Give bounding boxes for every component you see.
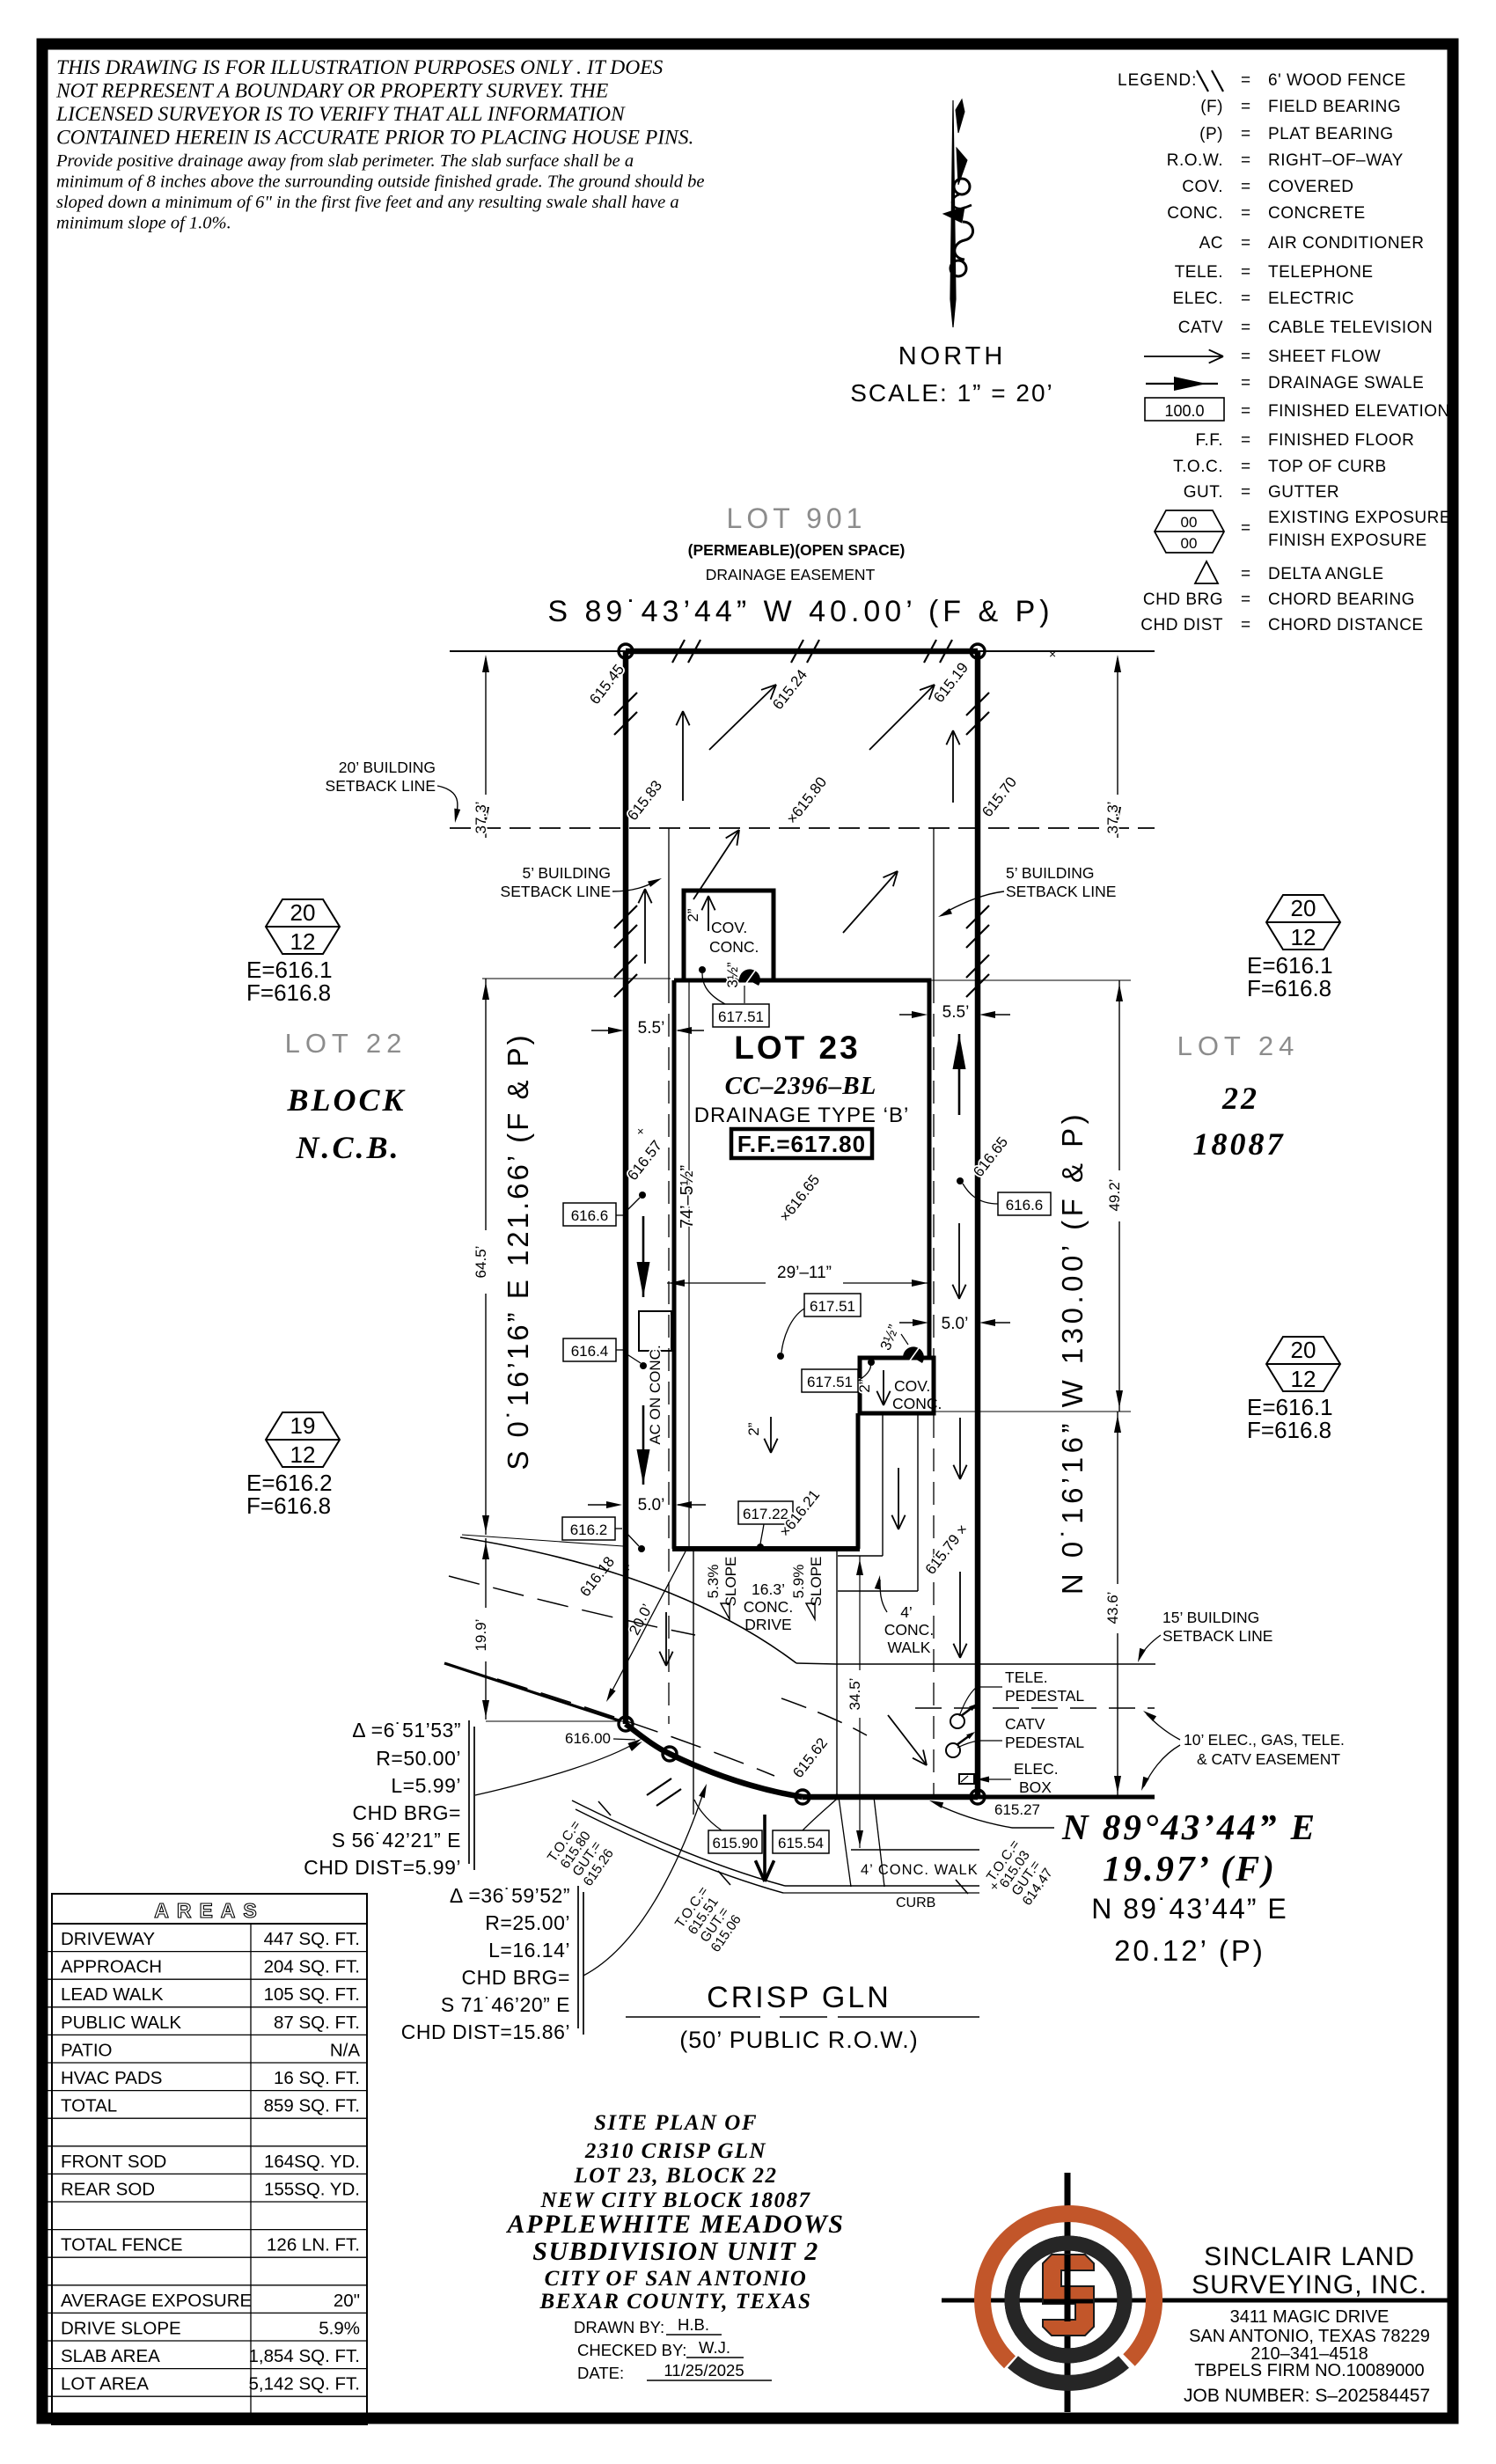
svg-text:BEXAR COUNTY, TEXAS: BEXAR COUNTY, TEXAS [539, 2290, 812, 2314]
svg-text:CONC.: CONC. [892, 1395, 942, 1412]
svg-text:PLAT BEARING: PLAT BEARING [1268, 125, 1394, 143]
svg-text:DRIVE: DRIVE [744, 1616, 791, 1633]
svg-text:5,142 SQ. FT.: 5,142 SQ. FT. [249, 2374, 360, 2394]
svg-text:=: = [1241, 263, 1250, 282]
svg-text:COVERED: COVERED [1268, 178, 1353, 196]
svg-text:CONC.: CONC. [744, 1598, 793, 1616]
svg-text:COV.: COV. [711, 919, 747, 936]
svg-text:JOB NUMBER: S–202584457: JOB NUMBER: S–202584457 [1184, 2386, 1430, 2406]
svg-text:20: 20 [1291, 1337, 1316, 1363]
svg-text:S 56˙42’21” E: S 56˙42’21” E [332, 1829, 461, 1852]
svg-text:PEDESTAL: PEDESTAL [1005, 1687, 1084, 1705]
svg-text:617.51: 617.51 [718, 1008, 764, 1025]
svg-text:& CATV EASEMENT: & CATV EASEMENT [1197, 1750, 1340, 1768]
svg-text:LEGEND:: LEGEND: [1118, 71, 1197, 90]
svg-text:AIR CONDITIONER: AIR CONDITIONER [1268, 234, 1424, 253]
svg-text:20": 20" [334, 2291, 360, 2311]
svg-text:(50’ PUBLIC R.O.W.): (50’ PUBLIC R.O.W.) [679, 2027, 919, 2053]
svg-text:=: = [1241, 590, 1250, 609]
svg-text:AC ON CONC.: AC ON CONC. [647, 1345, 664, 1444]
svg-text:NEW CITY BLOCK 18087: NEW CITY BLOCK 18087 [539, 2189, 810, 2212]
svg-text:=: = [1241, 98, 1250, 116]
svg-text:TELE.: TELE. [1005, 1668, 1048, 1686]
svg-text:PUBLIC WALK: PUBLIC WALK [61, 2013, 181, 2033]
svg-text:R=25.00’: R=25.00’ [485, 1911, 570, 1934]
svg-text:N 89°43’44” E: N 89°43’44” E [1061, 1807, 1317, 1847]
svg-text:155SQ. YD.: 155SQ. YD. [264, 2179, 360, 2199]
svg-text:TELE.: TELE. [1175, 263, 1223, 282]
svg-text:ELEC.: ELEC. [1014, 1760, 1059, 1778]
svg-text:SLOPE: SLOPE [808, 1557, 825, 1607]
svg-text:00: 00 [1181, 514, 1198, 531]
svg-text:sloped down a minimum of 6" in: sloped down a minimum of 6" in the first… [56, 193, 679, 212]
svg-text:19: 19 [290, 1412, 316, 1439]
svg-text:=: = [1241, 565, 1250, 583]
svg-text:CHD DIST=15.86’: CHD DIST=15.86’ [401, 2020, 570, 2043]
svg-text:EXISTING EXPOSURE: EXISTING EXPOSURE [1268, 509, 1451, 527]
svg-text:SCALE: 1” = 20’: SCALE: 1” = 20’ [850, 379, 1054, 407]
svg-text:22: 22 [1221, 1081, 1259, 1116]
svg-text:FINISHED FLOOR: FINISHED FLOOR [1268, 431, 1414, 450]
svg-text:CATV: CATV [1178, 319, 1223, 337]
svg-text:DELTA ANGLE: DELTA ANGLE [1268, 565, 1384, 583]
svg-text:FINISH EXPOSURE: FINISH EXPOSURE [1268, 532, 1427, 550]
svg-text:18087: 18087 [1193, 1126, 1286, 1162]
svg-text:SLAB AREA: SLAB AREA [61, 2346, 160, 2366]
svg-text:CONC.: CONC. [884, 1621, 934, 1639]
svg-text:100.0: 100.0 [1164, 402, 1204, 420]
svg-text:×: × [637, 1125, 644, 1138]
svg-text:F=616.8: F=616.8 [246, 979, 331, 1006]
svg-text:BLOCK: BLOCK [286, 1082, 406, 1118]
svg-text:CHD DIST: CHD DIST [1140, 616, 1223, 634]
svg-text:2”: 2” [856, 1379, 873, 1392]
svg-text:Δ =36˙59’52”: Δ =36˙59’52” [450, 1884, 570, 1907]
svg-text:SETBACK LINE: SETBACK LINE [1162, 1627, 1272, 1645]
svg-text:=: = [1241, 348, 1250, 366]
svg-text:GUTTER: GUTTER [1268, 483, 1339, 502]
svg-text:87 SQ. FT.: 87 SQ. FT. [274, 2013, 360, 2033]
svg-text:N 89˙43’44” E: N 89˙43’44” E [1091, 1893, 1287, 1925]
svg-text:SETBACK LINE: SETBACK LINE [326, 777, 436, 795]
svg-text:Δ =6˙51’53”: Δ =6˙51’53” [352, 1719, 461, 1742]
svg-text:SHEET FLOW: SHEET FLOW [1268, 348, 1381, 366]
svg-text:15’ BUILDING: 15’ BUILDING [1162, 1609, 1259, 1626]
svg-text:3½”: 3½” [724, 962, 741, 988]
svg-text:F.F.=617.80: F.F.=617.80 [737, 1131, 866, 1157]
svg-text:F=616.8: F=616.8 [246, 1492, 331, 1519]
svg-text:REAR SOD: REAR SOD [61, 2179, 155, 2199]
svg-text:LOT 901: LOT 901 [727, 502, 867, 534]
svg-text:447 SQ. FT.: 447 SQ. FT. [264, 1929, 360, 1949]
svg-text:CONC.: CONC. [709, 938, 759, 956]
svg-text:12: 12 [290, 928, 316, 955]
svg-text:minimum slope of 1.0%.: minimum slope of 1.0%. [56, 214, 231, 233]
svg-text:=: = [1241, 483, 1250, 502]
svg-text:616.4: 616.4 [571, 1343, 609, 1360]
svg-text:S 89˙43’44” W 40.00’ (F &: S 89˙43’44” W 40.00’ (F & P) [547, 595, 1053, 628]
svg-text:164SQ. YD.: 164SQ. YD. [264, 2152, 360, 2172]
svg-text:CHD BRG: CHD BRG [1143, 590, 1223, 609]
svg-text:34.5’: 34.5’ [847, 1678, 863, 1711]
svg-text:4’: 4’ [900, 1603, 913, 1621]
svg-text:N.C.B.: N.C.B. [295, 1130, 400, 1165]
svg-text:APPROACH: APPROACH [61, 1957, 162, 1977]
svg-text:SURVEYING, INC.: SURVEYING, INC. [1192, 2270, 1427, 2299]
svg-text:=: = [1241, 519, 1250, 538]
svg-text:3411 MAGIC DRIVE: 3411 MAGIC DRIVE [1230, 2307, 1390, 2327]
svg-text:=: = [1241, 204, 1250, 223]
svg-text:5’ BUILDING: 5’ BUILDING [1006, 864, 1095, 882]
svg-text:TOTAL FENCE: TOTAL FENCE [61, 2235, 183, 2255]
svg-text:=: = [1241, 374, 1250, 392]
svg-text:FIELD BEARING: FIELD BEARING [1268, 98, 1401, 116]
svg-text:BOX: BOX [1019, 1778, 1052, 1796]
svg-text:ELECTRIC: ELECTRIC [1268, 290, 1354, 308]
svg-text:CURB: CURB [896, 1896, 935, 1910]
svg-text:2310 CRISP GLN: 2310 CRISP GLN [584, 2139, 766, 2163]
svg-text:20: 20 [290, 899, 316, 926]
svg-text:4’ CONC. WALK: 4’ CONC. WALK [861, 1862, 979, 1878]
svg-text:AC: AC [1199, 234, 1223, 253]
svg-text:L=5.99’: L=5.99’ [391, 1774, 461, 1797]
svg-text:LICENSED SURVEYOR IS TO VERIFY: LICENSED SURVEYOR IS TO VERIFY THAT ALL … [55, 103, 626, 126]
svg-text:43.6’: 43.6’ [1104, 1592, 1121, 1624]
svg-text:SLOPE: SLOPE [722, 1557, 739, 1607]
svg-text:COV.: COV. [1182, 178, 1223, 196]
svg-text:SETBACK LINE: SETBACK LINE [501, 883, 611, 900]
svg-text:CONCRETE: CONCRETE [1268, 204, 1366, 223]
svg-text:CONC.: CONC. [1167, 204, 1223, 223]
svg-text:W.J.: W.J. [699, 2338, 730, 2357]
svg-text:GUT.: GUT. [1184, 483, 1223, 502]
svg-text:L=16.14’: L=16.14’ [488, 1939, 570, 1962]
svg-text:NOT REPRESENT A BOUNDARY OR PR: NOT REPRESENT A BOUNDARY OR PROPERTY SUR… [55, 80, 608, 103]
svg-text:PATIO: PATIO [61, 2040, 112, 2060]
svg-text:minimum of 8 inches above the: minimum of 8 inches above the surroundin… [56, 172, 704, 192]
svg-text:5.5’: 5.5’ [942, 1003, 970, 1022]
svg-text:SAN ANTONIO, TEXAS 78229: SAN ANTONIO, TEXAS 78229 [1189, 2327, 1430, 2346]
svg-text:DRIVEWAY: DRIVEWAY [61, 1929, 155, 1949]
svg-text:6' WOOD FENCE: 6' WOOD FENCE [1268, 71, 1406, 90]
svg-text:20.12’ (P): 20.12’ (P) [1114, 1934, 1265, 1967]
svg-text:19.97’ (F): 19.97’ (F) [1103, 1848, 1277, 1888]
svg-text:1,854 SQ. FT.: 1,854 SQ. FT. [249, 2346, 360, 2366]
svg-text:N 0˙16’16” W 130.00’ (F &: N 0˙16’16” W 130.00’ (F & P) [1056, 1111, 1089, 1595]
svg-text:T.O.C.: T.O.C. [1173, 458, 1223, 476]
svg-text:5.3%: 5.3% [705, 1565, 722, 1599]
svg-text:TELEPHONE: TELEPHONE [1268, 263, 1374, 282]
svg-text:H.B.: H.B. [678, 2315, 709, 2334]
svg-text:CABLE TELEVISION: CABLE TELEVISION [1268, 319, 1433, 337]
svg-text:(F): (F) [1200, 98, 1223, 116]
svg-text:×: × [1049, 647, 1056, 661]
svg-text:CHORD BEARING: CHORD BEARING [1268, 590, 1415, 609]
svg-text:THIS DRAWING IS FOR ILLUSTRATI: THIS DRAWING IS FOR ILLUSTRATION PURPOSE… [56, 56, 664, 79]
svg-text:SITE PLAN OF: SITE PLAN OF [594, 2111, 758, 2135]
svg-text:LOT 23, BLOCK 22: LOT 23, BLOCK 22 [574, 2164, 778, 2188]
svg-text:TBPELS FIRM NO.10089000: TBPELS FIRM NO.10089000 [1194, 2361, 1424, 2380]
svg-text:Provide positive drainage away: Provide positive drainage away from slab… [55, 151, 634, 171]
svg-text:=: = [1241, 71, 1250, 90]
svg-text:LOT 22: LOT 22 [285, 1028, 407, 1059]
svg-text:×: × [623, 1560, 630, 1574]
svg-text:LOT 24: LOT 24 [1177, 1030, 1300, 1061]
svg-text:R=50.00’: R=50.00’ [376, 1747, 461, 1770]
svg-text:2”: 2” [685, 908, 701, 921]
svg-text:615.54: 615.54 [778, 1835, 824, 1852]
svg-text:204 SQ. FT.: 204 SQ. FT. [264, 1957, 360, 1977]
svg-text:2”: 2” [745, 1422, 762, 1435]
svg-text:616.00: 616.00 [565, 1730, 611, 1747]
svg-text:=: = [1241, 234, 1250, 253]
svg-text:(PERMEABLE)(OPEN SPACE): (PERMEABLE)(OPEN SPACE) [688, 541, 906, 559]
svg-text:74’–5½”: 74’–5½” [678, 1165, 697, 1228]
svg-text:F=616.8: F=616.8 [1247, 975, 1331, 1001]
svg-text:5.0’: 5.0’ [942, 1315, 969, 1333]
svg-text:F.F.: F.F. [1195, 431, 1223, 450]
svg-text:16.3’: 16.3’ [752, 1580, 785, 1598]
svg-text:37.3’: 37.3’ [1104, 802, 1121, 834]
svg-text:=: = [1241, 431, 1250, 450]
svg-text:APPLEWHITE MEADOWS: APPLEWHITE MEADOWS [506, 2210, 845, 2239]
svg-text:5’ BUILDING: 5’ BUILDING [523, 864, 612, 882]
svg-text:LEAD WALK: LEAD WALK [61, 1984, 164, 2005]
svg-text:S 71˙46’20” E: S 71˙46’20” E [441, 1993, 570, 2016]
svg-text:5.9%: 5.9% [319, 2318, 360, 2338]
svg-text:=: = [1241, 402, 1250, 421]
svg-text:DRAWN BY:: DRAWN BY: [574, 2318, 664, 2336]
svg-text:WALK: WALK [888, 1639, 931, 1656]
svg-text:DRAINAGE SWALE: DRAINAGE SWALE [1268, 374, 1424, 392]
svg-text:29’–11”: 29’–11” [777, 1264, 832, 1282]
svg-text:12: 12 [1291, 924, 1316, 950]
svg-text:TOTAL: TOTAL [61, 2096, 117, 2116]
svg-text:CHD BRG=: CHD BRG= [353, 1801, 462, 1824]
svg-text:CC–2396–BL: CC–2396–BL [725, 1072, 877, 1100]
svg-text:TOP OF CURB: TOP OF CURB [1268, 458, 1387, 476]
svg-text:(P): (P) [1199, 125, 1223, 143]
svg-text:DRAINAGE TYPE ‘B’: DRAINAGE TYPE ‘B’ [694, 1104, 910, 1127]
svg-text:49.2’: 49.2’ [1106, 1179, 1123, 1212]
svg-text:12: 12 [1291, 1366, 1316, 1392]
svg-text:LOT 23: LOT 23 [734, 1030, 860, 1066]
svg-text:126 LN. FT.: 126 LN. FT. [267, 2235, 360, 2255]
svg-text:CHD DIST=5.99’: CHD DIST=5.99’ [304, 1856, 461, 1879]
svg-text:615.27: 615.27 [994, 1801, 1040, 1818]
svg-text:5.0’: 5.0’ [638, 1496, 665, 1514]
svg-text:CHORD DISTANCE: CHORD DISTANCE [1268, 616, 1424, 634]
svg-text:CATV: CATV [1005, 1715, 1045, 1733]
svg-text:105 SQ. FT.: 105 SQ. FT. [264, 1984, 360, 2005]
svg-text:616.6: 616.6 [571, 1207, 609, 1224]
svg-text:617.22: 617.22 [743, 1506, 788, 1522]
svg-text:19.9’: 19.9’ [473, 1619, 489, 1652]
svg-text:S 0˙16’16” E 121.66’ (F &: S 0˙16’16” E 121.66’ (F & P) [502, 1032, 534, 1470]
svg-text:FINISHED ELEVATION: FINISHED ELEVATION [1268, 402, 1450, 421]
svg-text:859 SQ. FT.: 859 SQ. FT. [264, 2096, 360, 2116]
svg-text:CRISP GLN: CRISP GLN [707, 1981, 891, 2014]
svg-text:CHECKED BY:: CHECKED BY: [577, 2341, 686, 2359]
svg-text:NORTH: NORTH [898, 342, 1007, 370]
svg-text:37.3’: 37.3’ [473, 802, 489, 834]
svg-text:SINCLAIR LAND: SINCLAIR LAND [1204, 2242, 1415, 2271]
svg-text:5.9%: 5.9% [790, 1565, 807, 1599]
svg-text:LOT AREA: LOT AREA [61, 2374, 149, 2394]
svg-text:SETBACK LINE: SETBACK LINE [1006, 883, 1116, 900]
svg-text:CITY OF SAN ANTONIO: CITY OF SAN ANTONIO [545, 2267, 808, 2291]
svg-text:ELEC.: ELEC. [1173, 290, 1223, 308]
svg-text:RIGHT–OF–WAY: RIGHT–OF–WAY [1268, 151, 1404, 170]
svg-text:CHD BRG=: CHD BRG= [462, 1966, 571, 1989]
svg-text:616.6: 616.6 [1006, 1197, 1044, 1214]
svg-text:DRIVE SLOPE: DRIVE SLOPE [61, 2318, 181, 2338]
svg-text:DATE:: DATE: [577, 2364, 624, 2382]
svg-text:00: 00 [1181, 535, 1198, 552]
svg-text:=: = [1241, 458, 1250, 476]
svg-text:=: = [1241, 616, 1250, 634]
svg-text:R.O.W.: R.O.W. [1167, 151, 1223, 170]
svg-text:COV.: COV. [894, 1377, 930, 1395]
svg-text:FRONT SOD: FRONT SOD [61, 2152, 166, 2172]
svg-text:11/25/2025: 11/25/2025 [664, 2361, 744, 2380]
svg-text:20’ BUILDING: 20’ BUILDING [339, 759, 436, 776]
svg-text:=: = [1241, 178, 1250, 196]
svg-text:SUBDIVISION UNIT 2: SUBDIVISION UNIT 2 [532, 2237, 818, 2266]
svg-text:12: 12 [290, 1441, 316, 1468]
svg-text:=: = [1241, 151, 1250, 170]
svg-text:CONTAINED HEREIN IS ACCURATE P: CONTAINED HEREIN IS ACCURATE PRIOR TO PL… [56, 127, 693, 150]
svg-text:615.90: 615.90 [713, 1835, 759, 1852]
svg-text:617.51: 617.51 [807, 1374, 853, 1390]
svg-text:N/A: N/A [330, 2040, 361, 2060]
svg-text:616.2: 616.2 [570, 1522, 608, 1538]
svg-text:=: = [1241, 125, 1250, 143]
svg-text:AVERAGE EXPOSURE: AVERAGE EXPOSURE [61, 2291, 252, 2311]
svg-text:AREAS: AREAS [154, 1899, 265, 1922]
svg-text:5.5’: 5.5’ [638, 1019, 665, 1038]
svg-text:16 SQ. FT.: 16 SQ. FT. [274, 2068, 360, 2088]
svg-text:10’ ELEC., GAS, TELE.: 10’ ELEC., GAS, TELE. [1184, 1731, 1345, 1749]
svg-text:617.51: 617.51 [810, 1298, 855, 1315]
svg-text:64.5’: 64.5’ [473, 1246, 489, 1279]
svg-text:HVAC PADS: HVAC PADS [61, 2068, 162, 2088]
svg-text:DRAINAGE EASEMENT: DRAINAGE EASEMENT [706, 566, 876, 583]
svg-text:F=616.8: F=616.8 [1247, 1417, 1331, 1443]
svg-text:=: = [1241, 319, 1250, 337]
svg-text:PEDESTAL: PEDESTAL [1005, 1734, 1084, 1751]
svg-text:20: 20 [1291, 895, 1316, 921]
svg-text:=: = [1241, 290, 1250, 308]
